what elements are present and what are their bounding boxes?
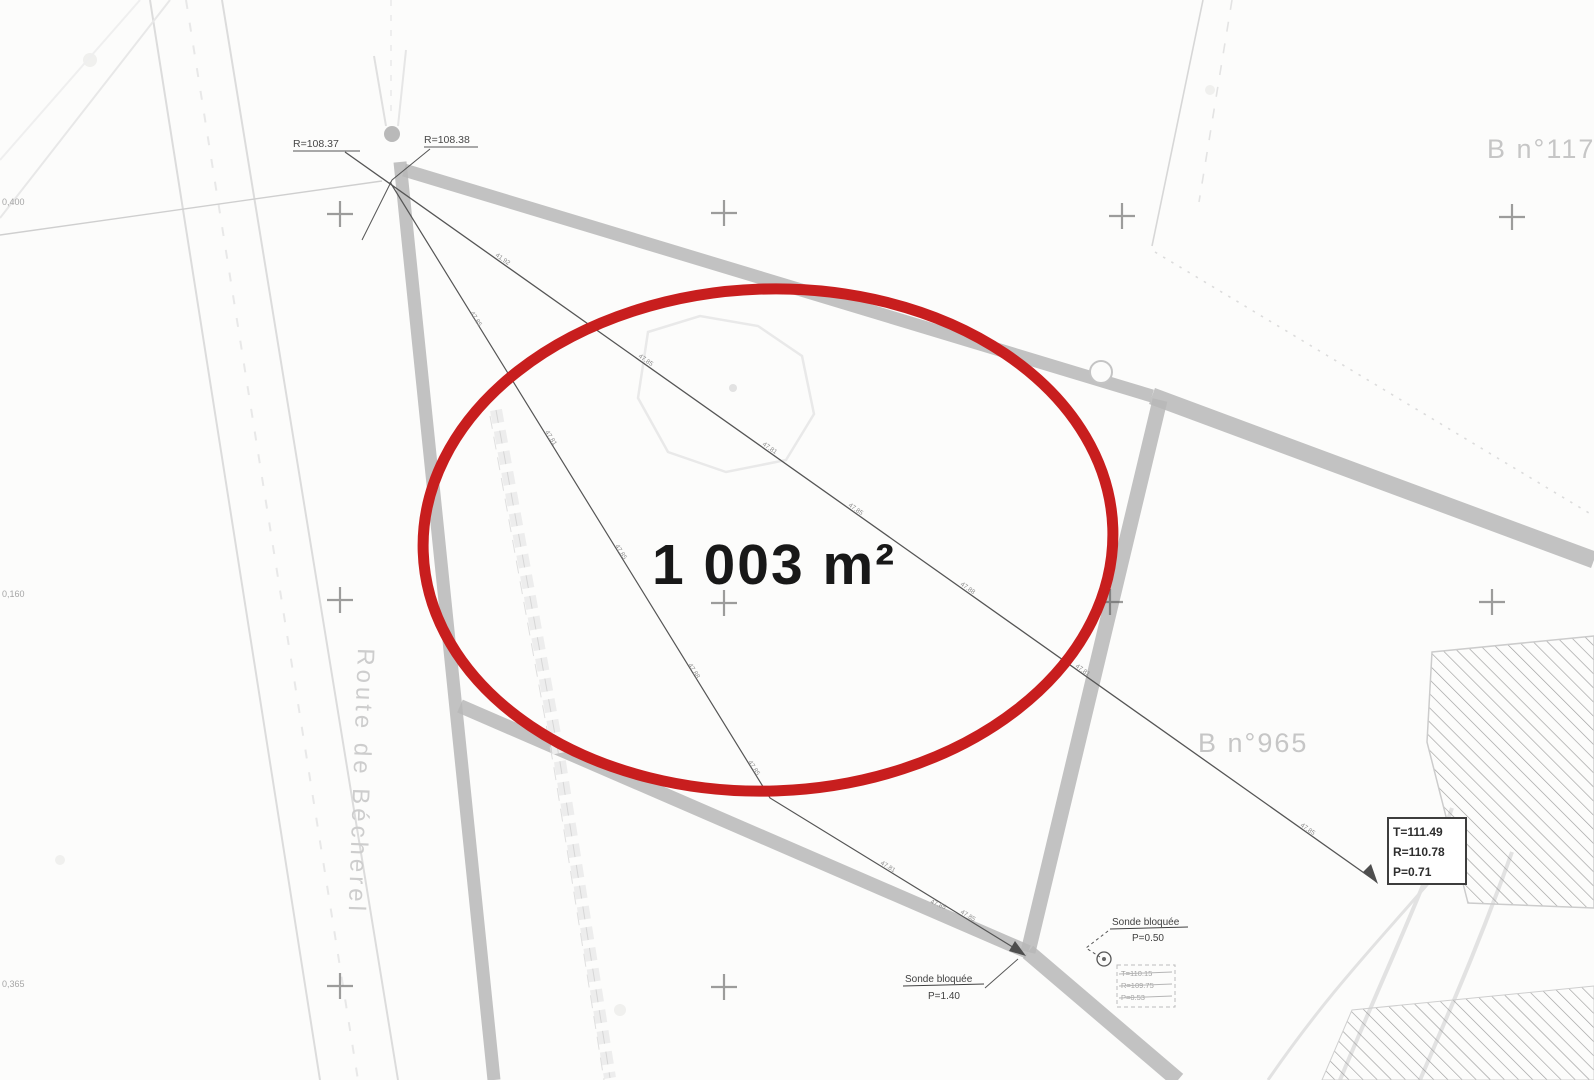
svg-text:47.85: 47.85 <box>1299 822 1317 837</box>
svg-text:0,400: 0,400 <box>2 197 25 207</box>
road-edges <box>0 0 398 1080</box>
svg-text:R=110.78: R=110.78 <box>1393 845 1445 859</box>
survey-point-circle <box>1090 361 1112 383</box>
svg-text:47.81: 47.81 <box>543 429 558 447</box>
parcel-boundaries <box>400 162 1594 1080</box>
svg-text:P=0.50: P=0.50 <box>1132 933 1164 944</box>
svg-text:P=0.71: P=0.71 <box>1393 865 1432 879</box>
svg-text:Sonde bloquée: Sonde bloquée <box>905 974 973 985</box>
parcel-label-965: B n°965 <box>1198 728 1308 758</box>
faint-boundaries-topright <box>1152 0 1594 516</box>
sonde-annotation-upper: Sonde bloquée P=0.50 <box>1086 917 1188 966</box>
svg-text:Sonde bloquée: Sonde bloquée <box>1112 917 1180 928</box>
svg-text:0,365: 0,365 <box>2 979 25 989</box>
edge-coordinate-labels: 0,400 0,160 0,365 <box>2 197 25 989</box>
svg-text:47.85: 47.85 <box>468 310 483 328</box>
plan-drawing: 41.92 47.85 47.81 47.85 47.88 47.81 47.8… <box>0 0 1594 1080</box>
svg-text:47.88: 47.88 <box>686 662 701 680</box>
sonde-annotation-lower: Sonde bloquée P=1.40 <box>903 959 1018 1002</box>
svg-text:47.81: 47.81 <box>879 860 897 875</box>
route-name-label: Route de Bécherel <box>343 648 379 916</box>
radius-label-left: R=108.37 <box>293 138 339 150</box>
radius-label-right: R=108.38 <box>424 134 470 146</box>
edge-leader-line <box>0 181 382 235</box>
cadastral-plan-canvas: 41.92 47.85 47.81 47.85 47.88 47.81 47.8… <box>0 0 1594 1080</box>
svg-text:0,160: 0,160 <box>2 589 25 599</box>
svg-text:47.85: 47.85 <box>613 543 628 561</box>
hatched-area-corner <box>1322 986 1594 1080</box>
svg-text:P=1.40: P=1.40 <box>928 991 960 1002</box>
svg-text:T=111.49: T=111.49 <box>1393 825 1443 839</box>
faint-building-outline <box>638 316 814 472</box>
faint-measure-box: T=110.15 R=109.75 P=0.53 <box>1117 965 1175 1007</box>
vertex-point <box>374 0 406 142</box>
svg-text:47.85: 47.85 <box>746 759 761 777</box>
parcel-label-117: B n°117 <box>1487 134 1594 164</box>
measure-box: T=111.49 R=110.78 P=0.71 <box>1388 818 1466 884</box>
area-label: 1 003 m² <box>652 533 896 597</box>
